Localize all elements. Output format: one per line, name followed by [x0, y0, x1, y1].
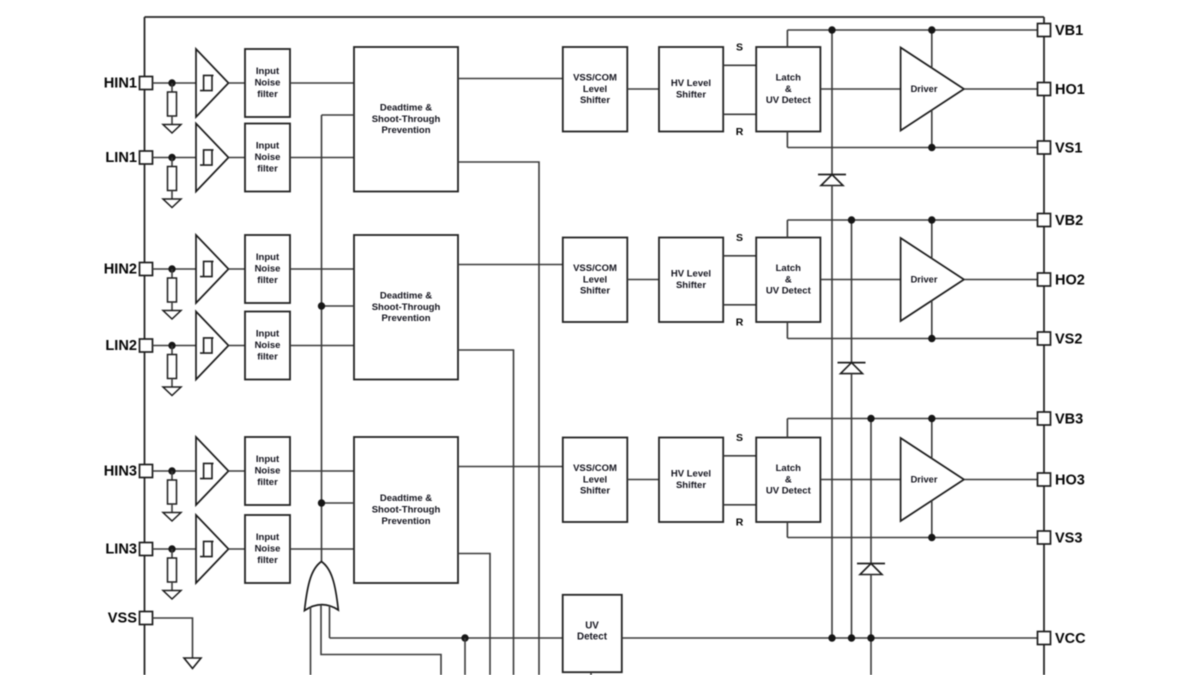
svg-text:Input: Input [256, 454, 280, 465]
svg-text:Noise: Noise [255, 466, 281, 477]
svg-text:Driver: Driver [911, 274, 938, 284]
svg-text:VB1: VB1 [1055, 23, 1083, 39]
svg-text:Deadtime &: Deadtime & [380, 493, 432, 504]
svg-text:filter: filter [257, 89, 278, 100]
svg-text:Shifter: Shifter [580, 486, 610, 497]
svg-text:HIN1: HIN1 [104, 75, 137, 91]
svg-text:Level: Level [583, 474, 607, 485]
svg-text:Detect: Detect [577, 632, 608, 643]
svg-text:Shifter: Shifter [676, 280, 706, 291]
svg-text:VCC: VCC [1055, 631, 1086, 647]
svg-text:VS3: VS3 [1055, 530, 1082, 546]
svg-text:Deadtime &: Deadtime & [380, 290, 432, 301]
svg-text:Input: Input [256, 66, 280, 77]
svg-text:Prevention: Prevention [381, 313, 430, 324]
svg-text:&: & [785, 274, 792, 285]
svg-text:Noise: Noise [255, 544, 281, 555]
svg-text:Driver: Driver [911, 474, 938, 484]
svg-text:VB2: VB2 [1055, 213, 1083, 229]
svg-text:Noise: Noise [255, 78, 281, 89]
svg-text:HO1: HO1 [1055, 82, 1085, 98]
svg-text:VB3: VB3 [1055, 411, 1083, 427]
svg-text:filter: filter [257, 163, 278, 174]
svg-text:VS1: VS1 [1055, 140, 1082, 156]
svg-text:Prevention: Prevention [381, 125, 430, 136]
svg-text:HO3: HO3 [1055, 472, 1085, 488]
svg-text:VSS/COM: VSS/COM [573, 72, 617, 83]
svg-text:UV Detect: UV Detect [766, 486, 812, 497]
svg-text:S: S [736, 232, 743, 244]
svg-text:Input: Input [256, 252, 280, 263]
svg-text:Input: Input [256, 141, 280, 152]
svg-text:Shoot-Through: Shoot-Through [372, 505, 441, 516]
svg-text:Shifter: Shifter [676, 89, 706, 100]
svg-text:Latch: Latch [776, 263, 802, 274]
svg-text:Shoot-Through: Shoot-Through [372, 302, 441, 313]
svg-text:Deadtime &: Deadtime & [380, 102, 432, 113]
svg-text:UV: UV [585, 620, 599, 631]
svg-text:Noise: Noise [255, 152, 281, 163]
svg-text:&: & [785, 474, 792, 485]
svg-text:R: R [736, 126, 744, 138]
svg-text:HO2: HO2 [1055, 272, 1085, 288]
svg-text:Shifter: Shifter [580, 95, 610, 106]
svg-text:Prevention: Prevention [381, 516, 430, 527]
svg-text:Shifter: Shifter [676, 480, 706, 491]
svg-text:HV Level: HV Level [671, 78, 711, 89]
svg-text:UV Detect: UV Detect [766, 95, 812, 106]
svg-text:HV Level: HV Level [671, 469, 711, 480]
svg-text:VSS/COM: VSS/COM [573, 263, 617, 274]
svg-text:Level: Level [583, 84, 607, 95]
svg-text:LIN3: LIN3 [105, 541, 137, 557]
svg-text:filter: filter [257, 351, 278, 362]
svg-text:filter: filter [257, 275, 278, 286]
svg-text:Noise: Noise [255, 264, 281, 275]
svg-text:Shifter: Shifter [580, 286, 610, 297]
svg-text:Input: Input [256, 329, 280, 340]
svg-text:LIN2: LIN2 [105, 338, 137, 354]
svg-text:VSS: VSS [108, 610, 137, 626]
svg-text:HIN3: HIN3 [104, 463, 137, 479]
svg-text:S: S [736, 432, 743, 444]
svg-text:R: R [736, 317, 744, 329]
svg-text:HV Level: HV Level [671, 269, 711, 280]
svg-text:&: & [785, 84, 792, 95]
svg-text:VS2: VS2 [1055, 331, 1082, 347]
svg-text:Driver: Driver [911, 84, 938, 94]
svg-text:R: R [736, 517, 744, 529]
svg-text:Latch: Latch [776, 72, 802, 83]
svg-text:Level: Level [583, 274, 607, 285]
svg-text:VSS/COM: VSS/COM [573, 463, 617, 474]
svg-text:filter: filter [257, 555, 278, 566]
svg-text:Noise: Noise [255, 340, 281, 351]
svg-text:HIN2: HIN2 [104, 261, 137, 277]
svg-text:S: S [736, 42, 743, 54]
svg-text:Input: Input [256, 532, 280, 543]
svg-text:Latch: Latch [776, 463, 802, 474]
svg-text:UV Detect: UV Detect [766, 286, 812, 297]
svg-text:filter: filter [257, 477, 278, 488]
svg-text:LIN1: LIN1 [105, 150, 137, 166]
svg-text:Shoot-Through: Shoot-Through [372, 114, 441, 125]
